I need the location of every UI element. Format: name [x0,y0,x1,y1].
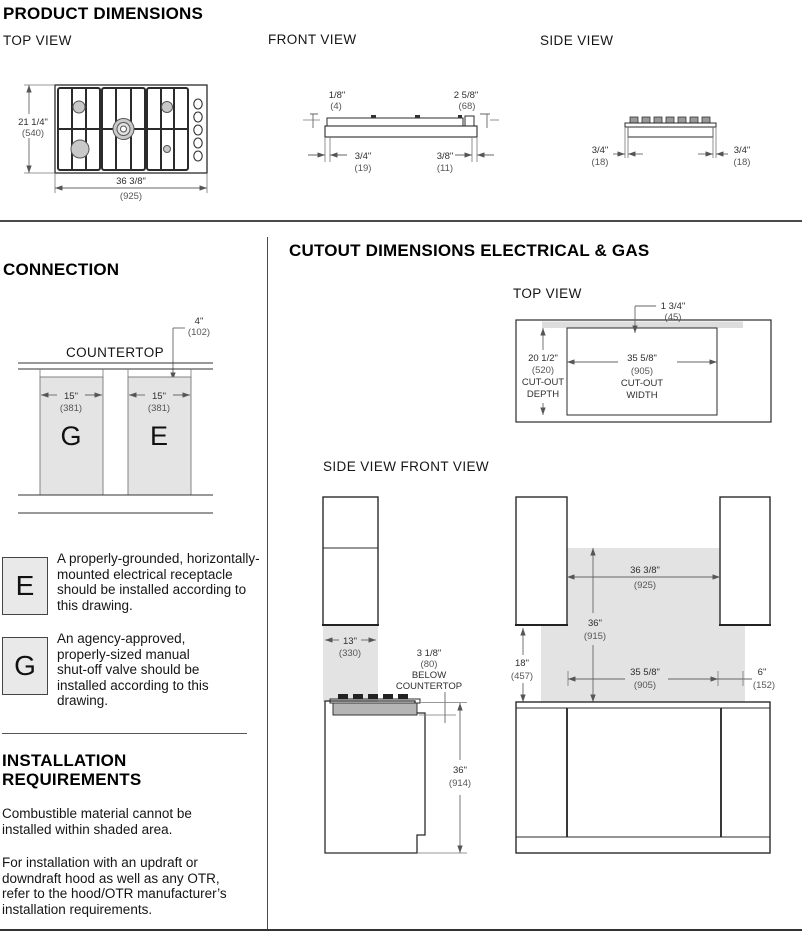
knob-profile [465,116,474,126]
dim-product-depth-mm: (540) [22,128,44,139]
below-caption-2: COUNTERTOP [396,681,462,692]
dim-front-right-mm: (11) [437,163,453,174]
installation-p1: Combustible material cannot be installed… [2,806,217,837]
dim-elec-width-mm: (381) [148,403,170,414]
front-right-wall-cabinet [720,497,770,625]
dim-side-right-in: 3/4" [734,145,751,156]
gas-zone-letter: G [60,421,81,451]
dim-between-cabinets-mm: (925) [634,580,656,591]
product-top-view-label: TOP VIEW [3,33,72,48]
grate-teeth [630,117,710,123]
cutout-title: CUTOUT DIMENSIONS ELECTRICAL & GAS [289,241,649,261]
legend-divider [2,733,247,734]
dim-cabinet-depth-mm: (330) [339,648,361,659]
cooktop-body-profile [325,126,477,137]
dim-clearance-mm: (457) [511,671,533,682]
dim-counter-height-mm: (914) [449,778,471,789]
control-knobs [194,99,202,161]
connection-title: CONNECTION [3,260,119,280]
cutout-width-caption-2: WIDTH [626,390,657,401]
connection-drawing: 4" (102) COUNTERTOP 15" (381) 15" (381) … [5,300,267,520]
dim-front-knob-in: 2 5/8" [454,90,479,101]
dim-clearance-in: 18" [515,658,529,669]
cutout-depth-caption-2: DEPTH [527,389,559,400]
cooktop-glass-profile [327,118,463,126]
product-side-view-label: SIDE VIEW [540,33,613,48]
front-left-wall-cabinet [516,497,567,625]
legend-e-text: A properly-grounded, horizontally-mounte… [57,551,262,613]
dim-front-lip-in: 1/8" [329,90,346,101]
dim-gas-width-mm: (381) [60,403,82,414]
dim-product-depth-in: 21 1/4" [18,117,48,128]
product-front-view-drawing: 1/8" (4) 2 5/8" (68) 3/4" (19) 3/8" (11) [300,85,498,177]
legend-g-box: G [2,637,48,695]
cutout-side-front-label: SIDE VIEW FRONT VIEW [323,459,489,474]
column-divider [267,237,268,930]
dim-between-cabinets-in: 36 3/8" [630,565,660,576]
spec-sheet: PRODUCT DIMENSIONS TOP VIEW FRONT VIEW S… [0,0,802,935]
side-wall-cabinet [323,497,378,625]
legend-g-text: An agency-approved, properly-sized manua… [57,631,219,709]
rear-shaded-strip [542,322,743,329]
dim-counter-height-in: 36" [453,765,467,776]
legend-e-box: E [2,557,48,615]
side-cooktop-body [333,703,417,715]
dim-cutout-rear-mm: (45) [665,312,682,323]
side-base-cabinet [325,701,425,853]
dim-front-lip-mm: (4) [330,101,342,112]
legend-e-letter: E [16,570,35,602]
dim-cutout-width-in: 35 5/8" [627,353,657,364]
dim-side-right-mm: (18) [734,157,751,168]
dim-elec-width-in: 15" [152,391,166,402]
dim-connection-offset-in: 4" [195,316,204,327]
installation-p2: For installation with an updraft or down… [2,855,250,917]
dim-cabinet-depth-in: 13" [343,636,357,647]
dim-side-margin-mm: (152) [753,680,775,691]
dim-front-knob-mm: (68) [459,101,476,112]
installation-title: INSTALLATION REQUIREMENTS [2,751,172,789]
dim-front-right-in: 3/8" [437,151,454,162]
dim-cutout-depth-in: 20 1/2" [528,353,558,364]
dim-below-mm: (80) [421,659,438,670]
bottom-border [0,929,802,931]
product-side-view-drawing: 3/4" (18) 3/4" (18) [585,103,765,173]
dim-side-left-in: 3/4" [592,145,609,156]
front-base-cabinets [516,702,770,853]
dim-backsplash-mm: (915) [584,631,606,642]
dim-front-cutout-width-mm: (905) [634,680,656,691]
cutout-depth-caption-1: CUT-OUT [522,377,564,388]
dim-product-width-mm: (925) [120,191,142,202]
elec-zone-letter: E [150,421,168,451]
dim-front-left-mm: (19) [355,163,372,174]
top-section-divider [0,220,802,222]
dim-backsplash-in: 36" [588,618,602,629]
product-front-view-label: FRONT VIEW [268,32,357,47]
page-title: PRODUCT DIMENSIONS [3,4,203,24]
countertop-label: COUNTERTOP [66,345,164,360]
dim-gas-width-in: 15" [64,391,78,402]
dim-cutout-depth-mm: (520) [532,365,554,376]
dim-side-margin-in: 6" [758,667,767,678]
dim-cutout-rear-in: 1 3/4" [661,301,686,312]
dim-front-left-in: 3/4" [355,151,372,162]
dim-connection-offset-mm: (102) [188,327,210,338]
dim-below-in: 3 1/8" [417,648,442,659]
cutout-side-front-drawing: 13" (330) 3 1/8" (80) BELOW COUNTERTOP 3… [295,455,802,860]
dim-product-width-in: 36 3/8" [116,176,146,187]
legend-g-letter: G [14,650,36,682]
dim-cutout-width-mm: (905) [631,366,653,377]
below-caption-1: BELOW [412,670,446,681]
cutout-top-view-drawing: 1 3/4" (45) 20 1/2" (520) CUT-OUT DEPTH … [510,293,802,431]
product-top-view-drawing: 21 1/4" (540) 36 3/8" (925) [5,78,235,210]
dim-front-cutout-width-in: 35 5/8" [630,667,660,678]
dim-side-left-mm: (18) [592,157,609,168]
cutout-width-caption-1: CUT-OUT [621,378,663,389]
